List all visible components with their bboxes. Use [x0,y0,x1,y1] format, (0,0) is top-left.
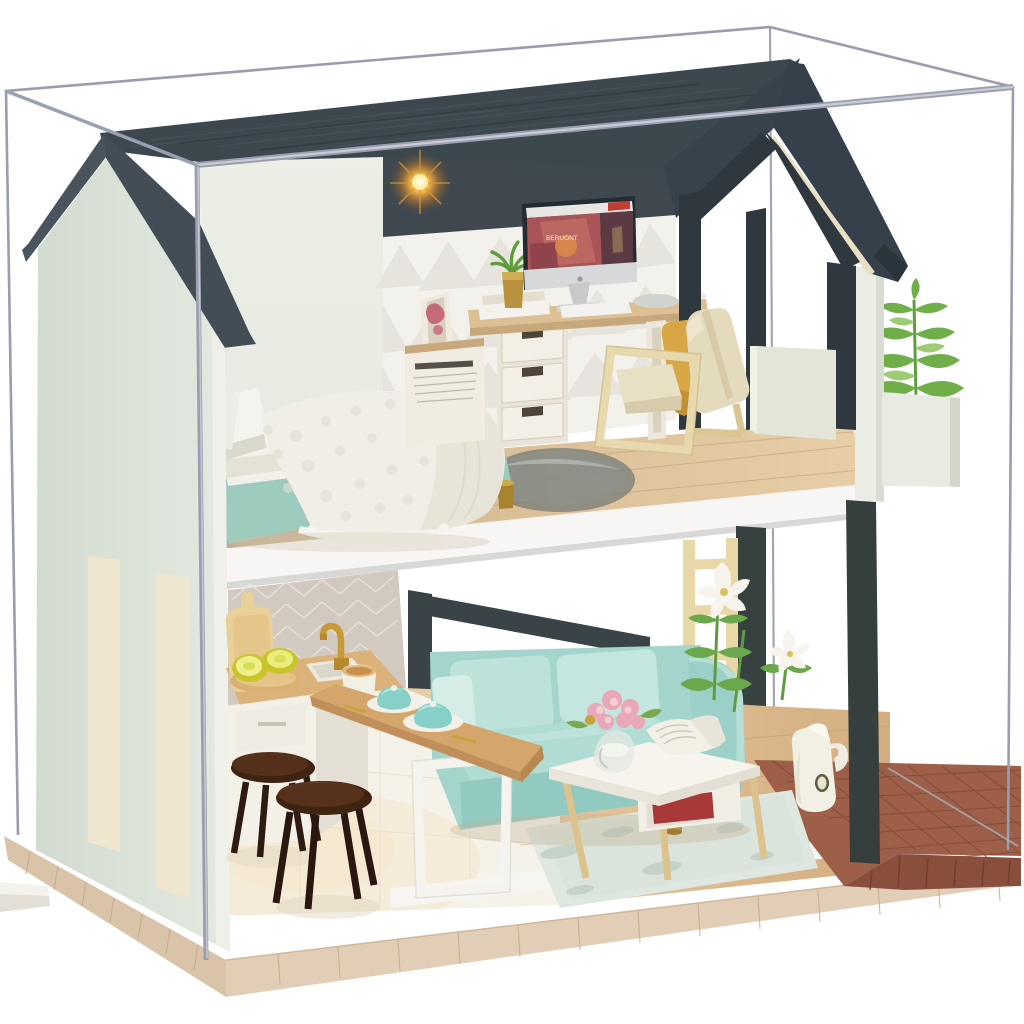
svg-text:BERUONT: BERUONT [546,235,578,242]
